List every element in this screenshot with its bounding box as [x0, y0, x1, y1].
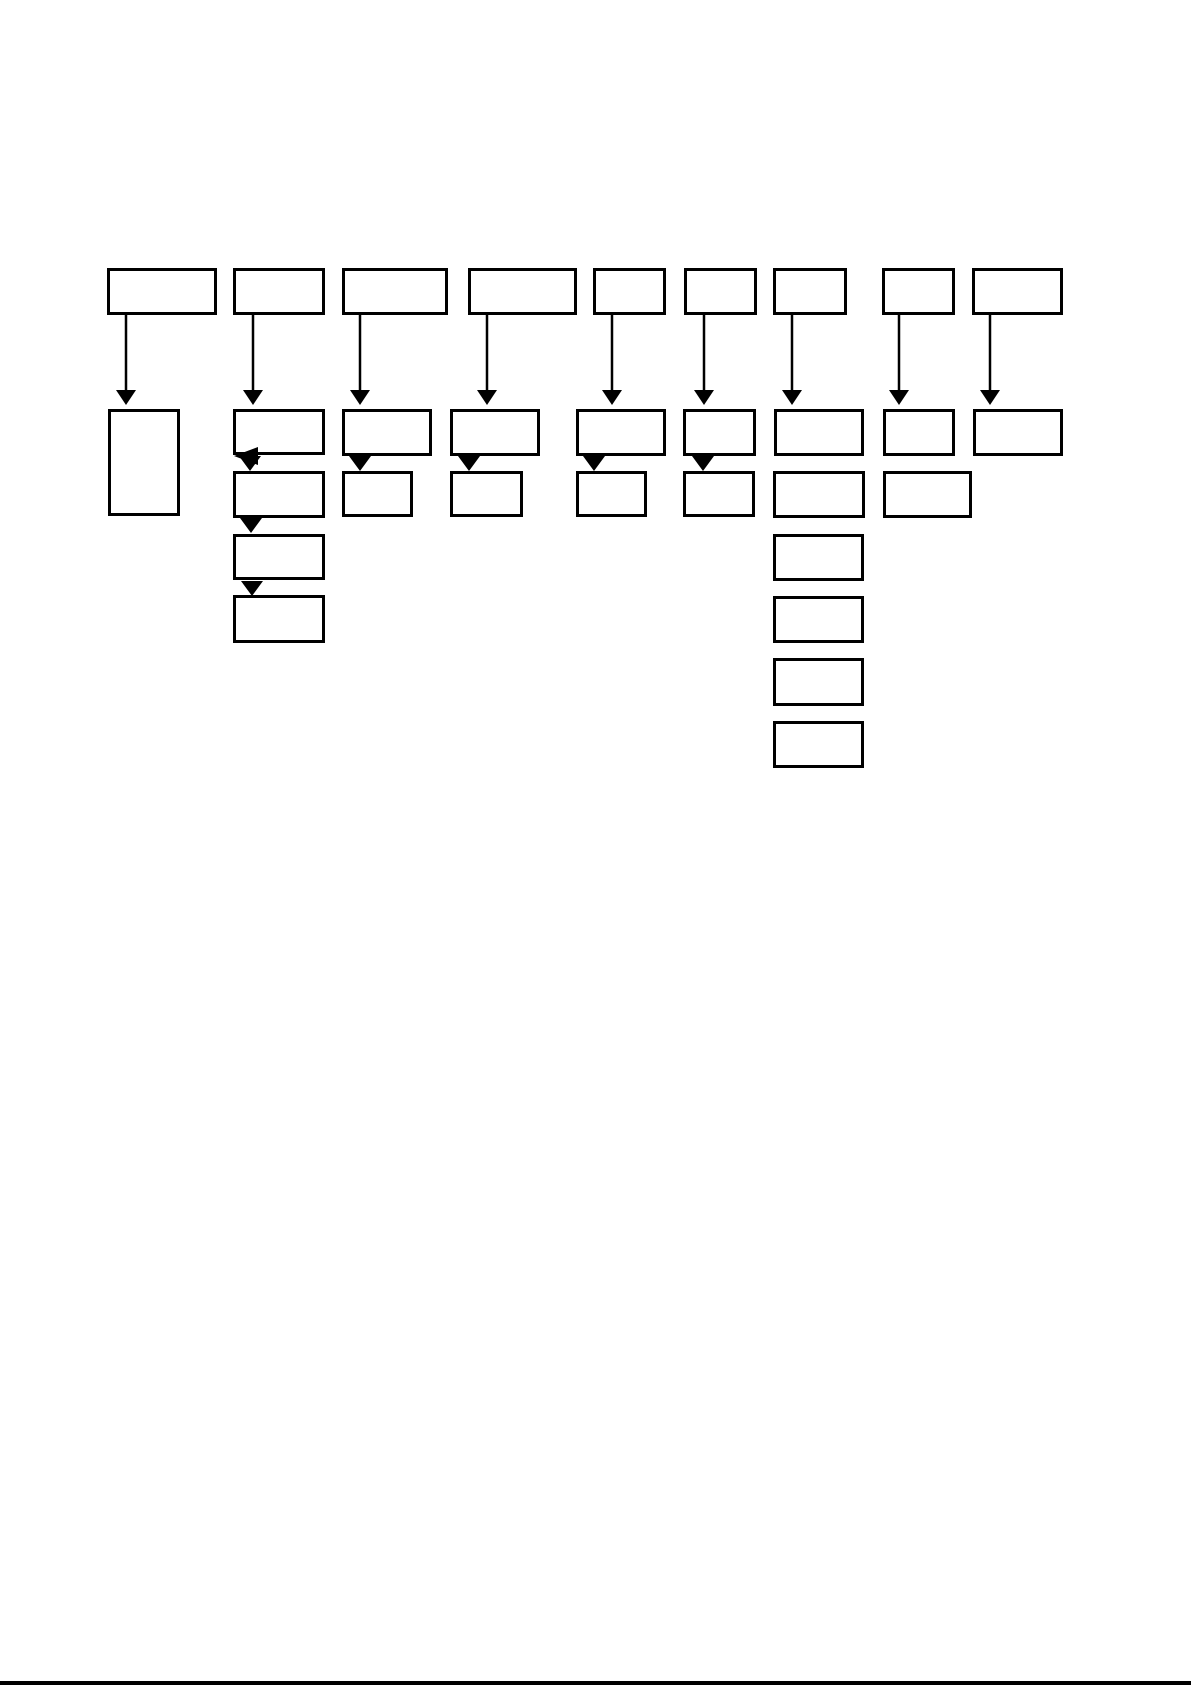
flowchart-box-col8-box-a	[885, 411, 954, 455]
flowchart-box-col4-box-a	[452, 411, 539, 455]
arrow-col2-arrowhead-icon	[243, 390, 263, 405]
page-bottom-rule	[0, 1681, 1191, 1685]
flowchart-box-col6-box-b	[685, 473, 754, 516]
flowchart-box-top-box-1	[109, 270, 216, 314]
flowchart-box-col2-box-b	[235, 473, 324, 517]
arrow-col7-arrowhead-icon	[782, 390, 802, 405]
flowchart-box-top-box-6	[686, 270, 756, 314]
flowchart-box-col7-box-f	[775, 723, 863, 767]
flowchart-box-top-box-7	[775, 270, 846, 314]
flowchart-box-col5-box-a	[578, 411, 665, 455]
head-col3-a-b-arrowhead-icon	[349, 456, 371, 471]
flowchart-box-col9-box-a	[975, 411, 1062, 455]
arrow-col5-arrowhead-icon	[602, 390, 622, 405]
flowchart-box-col7-box-a	[776, 411, 863, 455]
head-col2-b-c-arrowhead-icon	[240, 518, 262, 533]
arrow-col4-arrowhead-icon	[477, 390, 497, 405]
arrow-col6-arrowhead-icon	[694, 390, 714, 405]
flowchart-box-col5-box-b	[578, 473, 646, 516]
flowchart-box-col6-box-a	[685, 411, 755, 455]
document-page	[0, 0, 1191, 1685]
head-col4-a-b-arrowhead-icon	[458, 456, 480, 471]
head-col5-a-b-arrowhead-icon	[583, 456, 605, 471]
flowchart-box-col7-box-c	[775, 536, 863, 580]
flowchart-diagram	[0, 0, 1191, 1685]
arrow-col9-arrowhead-icon	[980, 390, 1000, 405]
flowchart-box-col4-box-b	[452, 473, 522, 516]
flowchart-box-col1-tall-box	[110, 411, 179, 515]
head-col2-c-d-arrowhead-icon	[241, 581, 263, 596]
flowchart-box-top-box-3	[344, 270, 447, 314]
flowchart-box-col7-box-b	[775, 473, 864, 517]
head-col6-a-b-arrowhead-icon	[692, 456, 714, 471]
flowchart-box-col3-box-a	[344, 411, 431, 455]
flowchart-box-top-box-9	[974, 270, 1062, 314]
flowchart-box-col3-box-b	[344, 473, 412, 516]
arrow-col1-arrowhead-icon	[116, 390, 136, 405]
flowchart-box-top-box-2	[235, 270, 324, 314]
flowchart-box-col2-box-d	[235, 597, 324, 642]
flowchart-box-top-box-5	[595, 270, 665, 314]
arrow-col8-arrowhead-icon	[889, 390, 909, 405]
flowchart-box-top-box-4	[470, 270, 576, 314]
flowchart-box-col8-box-b	[885, 473, 971, 517]
flowchart-box-col2-box-c	[235, 536, 324, 579]
flowchart-box-col7-box-e	[775, 660, 863, 705]
flowchart-box-top-box-8	[884, 270, 954, 314]
flowchart-box-col7-box-d	[775, 598, 863, 642]
arrow-col3-arrowhead-icon	[350, 390, 370, 405]
flowchart-box-col2-box-a	[235, 411, 324, 454]
